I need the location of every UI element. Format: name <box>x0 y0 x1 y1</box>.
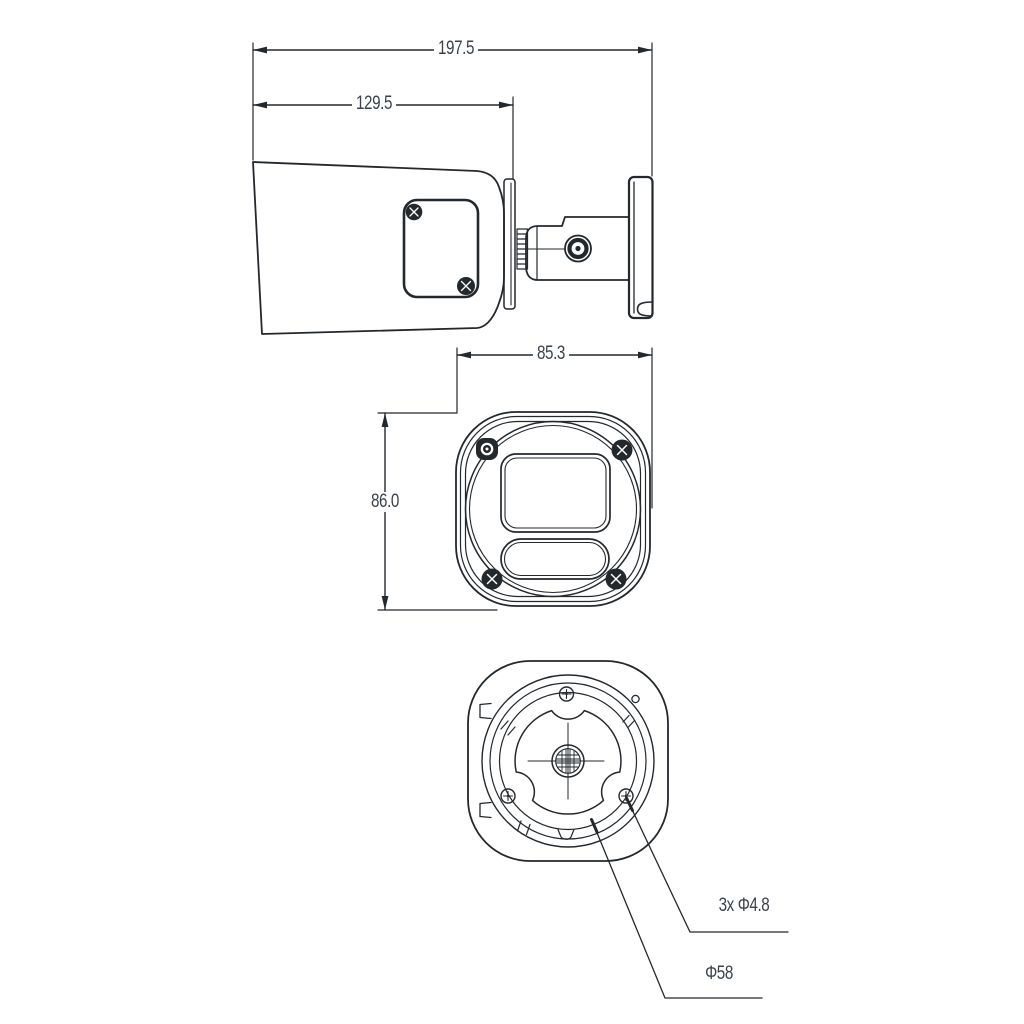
side-view-dimensions <box>253 43 652 179</box>
dim-height-label: 86.0 <box>367 492 403 512</box>
dim-width-label: 85.3 <box>533 344 569 364</box>
dim-overall-length-lines <box>253 43 652 176</box>
clip-slot-left-top <box>480 704 491 719</box>
arm-pivot-screw <box>565 236 591 262</box>
clip-slot-left-bottom <box>480 803 491 818</box>
dim-overall-length-label: 197.5 <box>434 39 478 59</box>
camera-body-outline <box>253 162 504 334</box>
rear-cap <box>504 179 515 309</box>
front-screw-bottom-right <box>606 569 627 590</box>
mount-plate-hook <box>638 302 653 316</box>
front-screw-top-right <box>612 440 633 461</box>
side-view <box>253 162 653 334</box>
pin-hole <box>632 695 639 702</box>
drawing-canvas: 197.5 129.5 85.3 86.0 3x Φ4.8 Φ58 <box>0 0 1024 1024</box>
front-screw-bottom-left <box>482 569 503 590</box>
mount-plate <box>629 177 653 318</box>
callout-mounting-holes-label: 3x Φ4.8 <box>715 896 774 916</box>
lens-window-inner <box>505 458 606 528</box>
dim-body-length-label: 129.5 <box>352 94 396 114</box>
ir-window-inner <box>505 543 606 576</box>
front-view <box>456 412 650 606</box>
rear-screw-top <box>560 687 574 701</box>
panel-screw-top <box>406 204 423 221</box>
front-screw-top-left <box>476 438 498 460</box>
callout-bolt-circle-label: Φ58 <box>701 964 737 984</box>
ir-window-outer <box>501 539 609 579</box>
camera-line-art <box>0 0 1024 1024</box>
lens-window-outer <box>501 454 610 532</box>
rear-screw-bottom-right <box>619 789 633 803</box>
panel-screw-bottom <box>457 277 475 295</box>
rear-view <box>468 661 668 861</box>
rear-screw-bottom-left <box>501 789 515 803</box>
